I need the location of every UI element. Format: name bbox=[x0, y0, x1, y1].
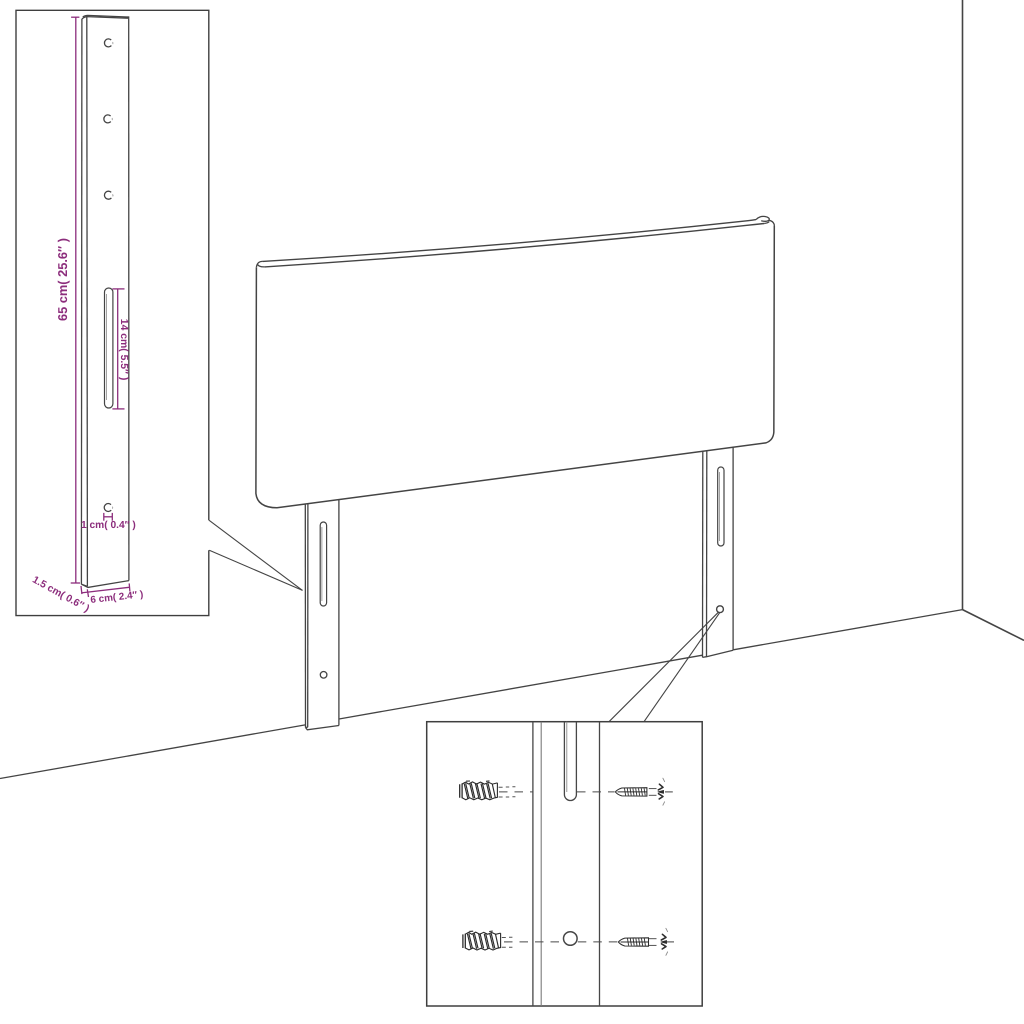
svg-text:1 cm( 0.4″ ): 1 cm( 0.4″ ) bbox=[81, 520, 136, 531]
svg-text:65 cm( 25.6″ ): 65 cm( 25.6″ ) bbox=[55, 238, 70, 321]
svg-text:14 cm( 5.5″ ): 14 cm( 5.5″ ) bbox=[118, 319, 129, 381]
svg-text:6 cm( 2.4″ ): 6 cm( 2.4″ ) bbox=[90, 589, 144, 606]
